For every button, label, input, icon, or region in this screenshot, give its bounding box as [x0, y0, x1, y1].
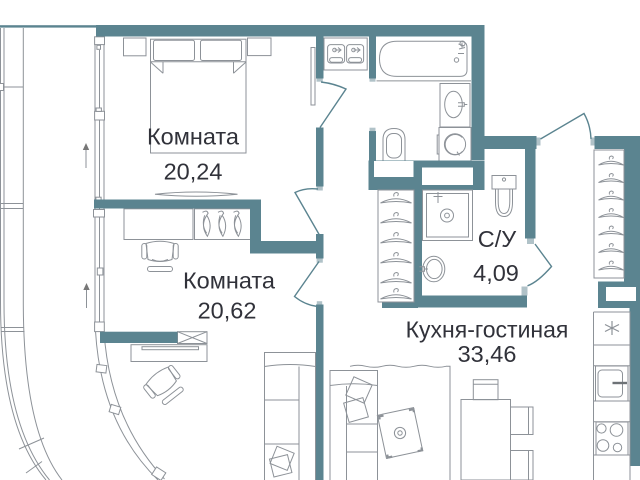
svg-text:С/У: С/У [478, 226, 518, 252]
svg-text:Комната: Комната [183, 268, 276, 294]
svg-text:33,46: 33,46 [458, 341, 517, 367]
svg-text:Кухня-гостиная: Кухня-гостиная [406, 317, 569, 343]
svg-text:Комната: Комната [147, 124, 240, 150]
svg-text:20,24: 20,24 [164, 159, 223, 185]
svg-text:4,09: 4,09 [473, 260, 519, 286]
svg-text:20,62: 20,62 [198, 298, 257, 324]
